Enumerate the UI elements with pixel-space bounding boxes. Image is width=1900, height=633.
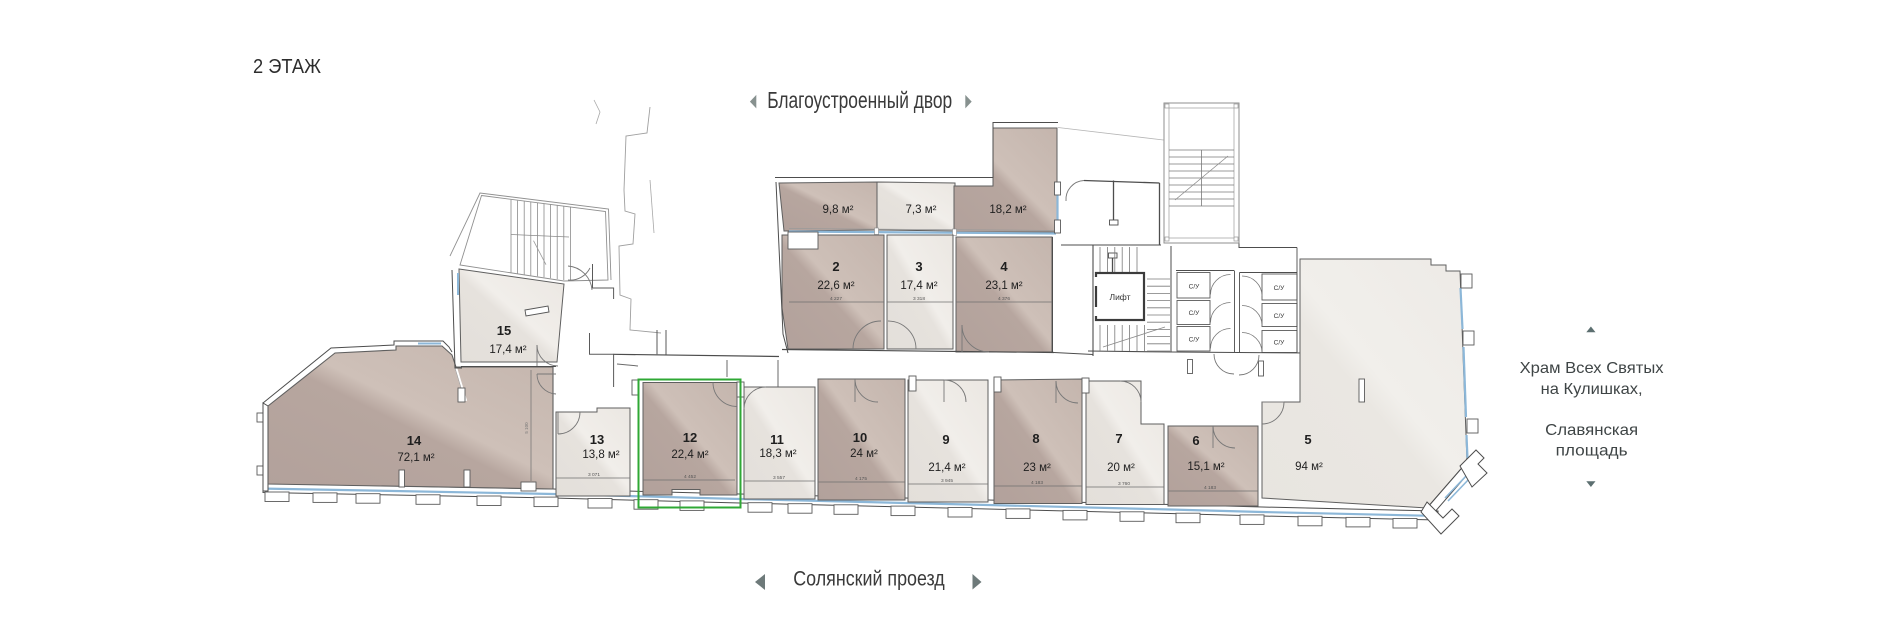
svg-text:9: 9 [942, 432, 949, 447]
svg-text:5 100: 5 100 [524, 422, 529, 434]
svg-text:С/У: С/У [1274, 340, 1286, 347]
svg-text:4 227: 4 227 [830, 296, 842, 302]
svg-text:23,1 м²: 23,1 м² [985, 280, 1022, 292]
svg-text:4 376: 4 376 [998, 296, 1010, 302]
svg-text:4: 4 [1000, 259, 1008, 274]
svg-text:9,8 м²: 9,8 м² [823, 204, 854, 216]
svg-text:23 м²: 23 м² [1023, 462, 1051, 474]
svg-text:14: 14 [407, 433, 422, 448]
svg-text:21,4 м²: 21,4 м² [928, 462, 965, 474]
svg-text:13,8 м²: 13,8 м² [582, 449, 619, 461]
svg-text:18,3 м²: 18,3 м² [759, 448, 796, 460]
svg-text:4 175: 4 175 [855, 476, 867, 482]
svg-text:3: 3 [915, 259, 922, 274]
svg-text:2: 2 [832, 259, 839, 274]
svg-text:17,4 м²: 17,4 м² [900, 280, 937, 292]
svg-text:4 183: 4 183 [1031, 480, 1043, 486]
svg-text:20 м²: 20 м² [1107, 462, 1135, 474]
svg-text:10: 10 [853, 430, 867, 445]
svg-text:на Кулишках,: на Кулишках, [1541, 381, 1643, 398]
svg-text:8: 8 [1032, 431, 1039, 446]
svg-text:Солянский проезд: Солянский проезд [793, 567, 945, 591]
svg-text:3 760: 3 760 [1118, 481, 1130, 487]
svg-text:11: 11 [770, 432, 784, 447]
svg-text:12: 12 [683, 430, 697, 445]
svg-text:4 183: 4 183 [1204, 485, 1216, 491]
svg-text:2 ЭТАЖ: 2 ЭТАЖ [253, 56, 321, 78]
svg-text:18,2 м²: 18,2 м² [989, 204, 1026, 216]
svg-text:площадь: площадь [1556, 443, 1628, 460]
svg-text:7,3 м²: 7,3 м² [906, 204, 937, 216]
svg-text:С/У: С/У [1189, 337, 1201, 344]
svg-text:4 452: 4 452 [684, 474, 696, 480]
svg-text:С/У: С/У [1274, 285, 1286, 292]
svg-text:5: 5 [1304, 432, 1311, 447]
svg-text:22,4 м²: 22,4 м² [671, 449, 708, 461]
svg-text:С/У: С/У [1274, 313, 1286, 320]
svg-text:7: 7 [1115, 431, 1122, 446]
svg-text:3 945: 3 945 [941, 478, 953, 484]
svg-text:15,1 м²: 15,1 м² [1187, 461, 1224, 473]
svg-text:22,6 м²: 22,6 м² [817, 280, 854, 292]
svg-text:Благоустроенный двор: Благоустроенный двор [767, 87, 952, 113]
svg-text:С/У: С/У [1189, 284, 1201, 291]
svg-text:С/У: С/У [1189, 310, 1201, 317]
svg-text:15: 15 [497, 323, 511, 338]
svg-text:3 557: 3 557 [773, 475, 785, 481]
svg-text:94 м²: 94 м² [1295, 461, 1323, 473]
svg-text:6: 6 [1192, 433, 1199, 448]
svg-text:13: 13 [590, 432, 604, 447]
svg-text:Храм Всех Святых: Храм Всех Святых [1520, 360, 1664, 377]
svg-text:24 м²: 24 м² [850, 448, 878, 460]
svg-text:Славянская: Славянская [1545, 422, 1638, 439]
svg-text:72,1 м²: 72,1 м² [397, 452, 434, 464]
svg-text:Лифт: Лифт [1109, 292, 1130, 302]
svg-text:3 071: 3 071 [588, 472, 600, 478]
svg-text:17,4 м²: 17,4 м² [489, 344, 526, 356]
svg-text:3 318: 3 318 [913, 296, 925, 302]
